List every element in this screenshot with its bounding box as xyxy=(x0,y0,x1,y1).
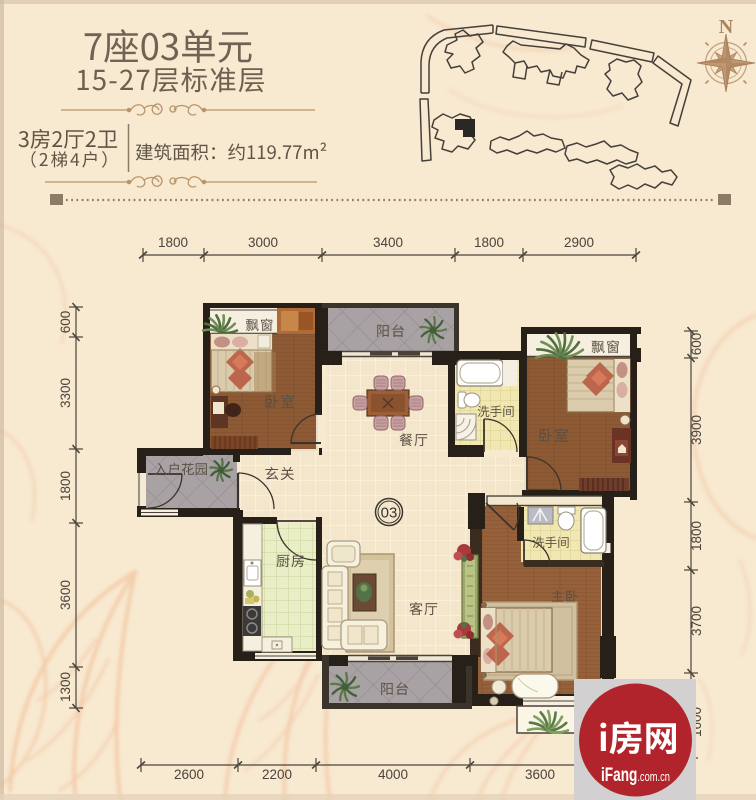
svg-text:4000: 4000 xyxy=(378,767,408,782)
svg-text:iFang.com.cn: iFang.com.cn xyxy=(601,765,670,786)
svg-text:1800: 1800 xyxy=(58,471,73,501)
svg-text:2200: 2200 xyxy=(262,767,292,782)
svg-text:3700: 3700 xyxy=(689,606,704,636)
svg-text:600: 600 xyxy=(58,311,73,334)
svg-text:3600: 3600 xyxy=(58,580,73,610)
svg-text:600: 600 xyxy=(689,333,704,356)
svg-text:1800: 1800 xyxy=(474,235,504,250)
svg-text:03: 03 xyxy=(381,505,398,522)
svg-text:2600: 2600 xyxy=(174,767,204,782)
svg-text:1800: 1800 xyxy=(158,235,188,250)
svg-text:3900: 3900 xyxy=(689,415,704,445)
svg-text:3300: 3300 xyxy=(58,378,73,408)
svg-text:N: N xyxy=(719,16,734,38)
svg-text:3400: 3400 xyxy=(373,235,403,250)
svg-text:2900: 2900 xyxy=(564,235,594,250)
svg-text:3600: 3600 xyxy=(525,767,555,782)
svg-text:1800: 1800 xyxy=(689,521,704,551)
svg-text:1300: 1300 xyxy=(58,672,73,702)
svg-text:3000: 3000 xyxy=(248,235,278,250)
